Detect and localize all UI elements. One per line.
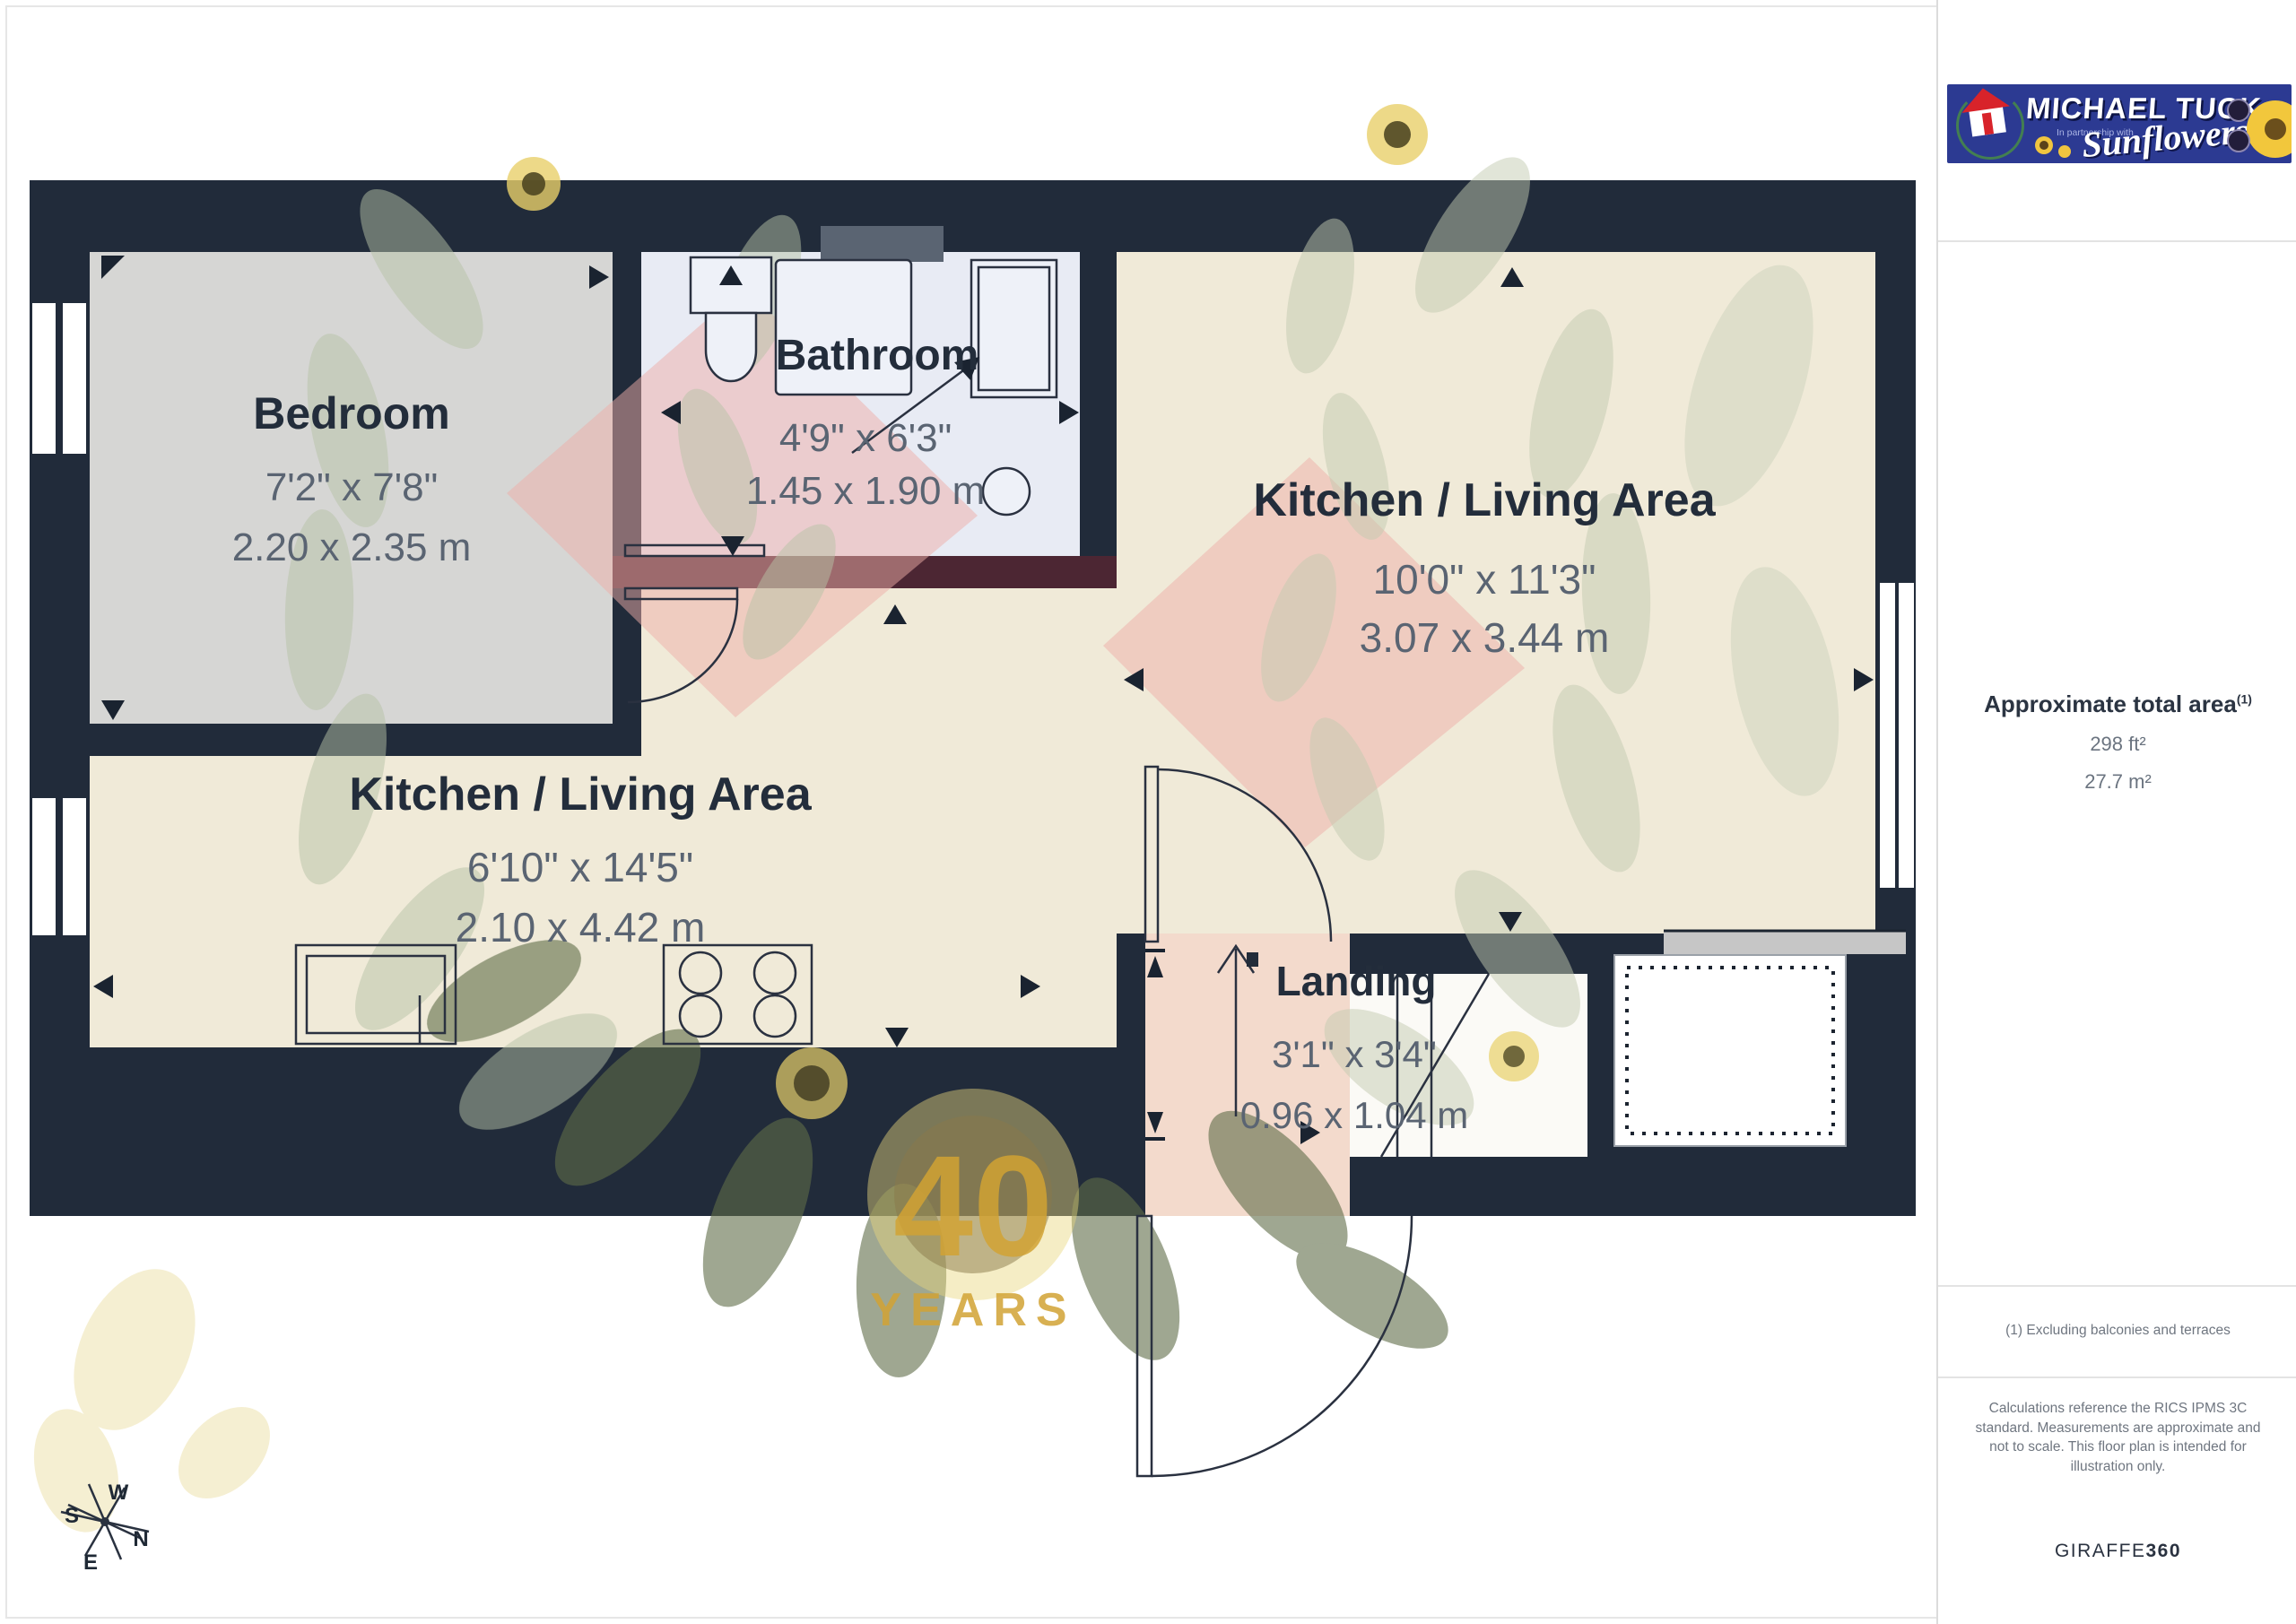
- credit-brand-name: GIRAFFE: [2055, 1541, 2146, 1561]
- total-area-metric: 27.7 m²: [1938, 770, 2296, 794]
- basin: [983, 468, 1030, 515]
- room-dim-metric: 0.96 x 1.04 m: [1240, 1094, 1468, 1136]
- room-dim-metric: 2.20 x 2.35 m: [232, 525, 472, 569]
- room-dim-imperial: 4'9" x 6'3": [779, 416, 952, 460]
- room-bathroom-label: Bathroom 4'9" x 6'3" 1.45 x 1.90 m: [746, 332, 986, 513]
- badge-icon: [2227, 99, 2250, 122]
- watermark-number: 40: [893, 1125, 1053, 1286]
- window-pane: [63, 798, 86, 935]
- hatch-strip: [1664, 931, 1906, 954]
- room-dim-metric: 3.07 x 3.44 m: [1360, 614, 1610, 661]
- sunflower-center-icon: [2265, 118, 2286, 140]
- compass-s: S: [65, 1504, 79, 1528]
- house-icon: [1969, 106, 2006, 137]
- agency-logo: MICHAEL TUCK In partnership with Sunflow…: [1947, 84, 2292, 163]
- total-area-title-text: Approximate total area: [1984, 690, 2237, 717]
- room-dim-imperial: 3'1" x 3'4": [1272, 1033, 1437, 1075]
- window-pane: [32, 303, 56, 454]
- watermark-petals: [21, 1250, 287, 1542]
- room-dim-imperial: 6'10" x 14'5": [467, 844, 693, 890]
- total-area-title: Approximate total area(1): [1938, 690, 2296, 718]
- room-name: Bedroom: [253, 388, 449, 439]
- sunflower-icon: [2058, 145, 2071, 158]
- room-dim-imperial: 10'0" x 11'3": [1373, 556, 1596, 603]
- total-area-footnote-marker: (1): [2237, 691, 2252, 706]
- credit-brand-suffix: 360: [2145, 1541, 2181, 1561]
- hatch-box: [1614, 955, 1846, 1146]
- divider: [1938, 1376, 2296, 1378]
- window-pane: [1899, 583, 1914, 888]
- window-pane: [63, 303, 86, 454]
- disclaimer-text: Calculations reference the RICS IPMS 3C …: [1968, 1399, 2268, 1477]
- watermark-40-years: 40 YEARS: [870, 1125, 1075, 1336]
- window-pane: [32, 798, 56, 935]
- compass-n: N: [133, 1527, 148, 1551]
- info-sidebar: MICHAEL TUCK In partnership with Sunflow…: [1936, 0, 2296, 1624]
- badge-icon: [2227, 129, 2250, 152]
- compass-e: E: [83, 1550, 98, 1575]
- flue: [821, 226, 944, 262]
- entrance-door-arc: [1152, 1216, 1412, 1476]
- room-name: Bathroom: [776, 332, 979, 379]
- room-dim-metric: 2.10 x 4.42 m: [456, 904, 706, 951]
- watermark-years: YEARS: [870, 1284, 1075, 1336]
- floorplan: 40 YEARS: [0, 0, 1937, 1624]
- sunflower-center-icon: [2039, 141, 2048, 150]
- room-bedroom-label: Bedroom 7'2" x 7'8" 2.20 x 2.35 m: [232, 388, 472, 569]
- total-area-block: Approximate total area(1) 298 ft² 27.7 m…: [1938, 690, 2296, 794]
- shower: [971, 260, 1057, 397]
- toilet-bowl: [706, 313, 756, 381]
- room-dim-imperial: 7'2" x 7'8": [265, 465, 438, 509]
- room-name: Kitchen / Living Area: [1253, 474, 1716, 526]
- footnote: (1) Excluding balconies and terraces: [1938, 1285, 2296, 1376]
- divider: [1938, 240, 2296, 242]
- room-name: Landing: [1276, 958, 1437, 1004]
- compass-w: W: [109, 1481, 129, 1505]
- room-name: Kitchen / Living Area: [349, 769, 812, 821]
- total-area-imperial: 298 ft²: [1938, 733, 2296, 756]
- room-dim-metric: 1.45 x 1.90 m: [746, 469, 986, 513]
- credit-brand: GIRAFFE360: [1938, 1541, 2296, 1562]
- window-pane: [1880, 583, 1895, 888]
- stairs-arrow-flag: [1247, 952, 1258, 967]
